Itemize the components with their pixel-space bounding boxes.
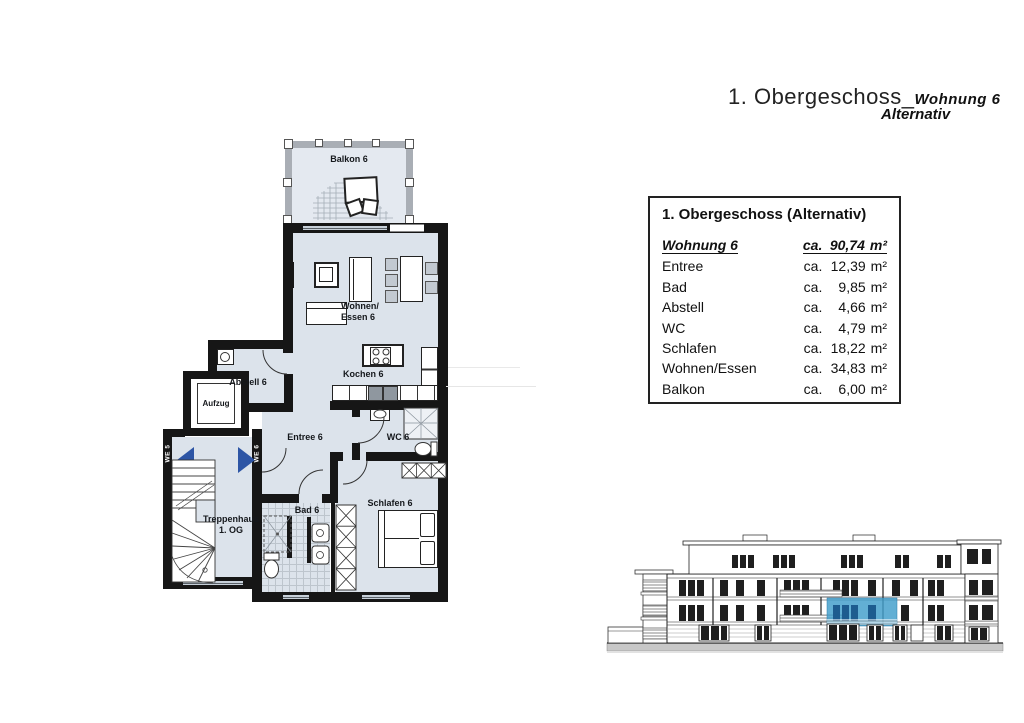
- wc-toilet: [415, 442, 437, 456]
- wardrobe-column: [336, 505, 356, 590]
- right-wing: [965, 574, 998, 643]
- stove-burners: [373, 349, 389, 364]
- washing-machine-drum: [221, 353, 230, 362]
- penthouse: [683, 535, 967, 574]
- label-living-line2: Essen 6: [341, 312, 401, 323]
- label-bedroom: Schlafen 6: [355, 498, 425, 509]
- balcony-table-set: [344, 177, 378, 216]
- scanned-floorplan-page: 1. Obergeschoss_Wohnung 6 Alternativ 1. …: [0, 0, 1024, 723]
- wc-sink-bowl: [374, 410, 386, 418]
- label-balcony: Balkon 6: [309, 154, 389, 165]
- label-elevator: Aufzug: [197, 398, 235, 409]
- ground-bar: [607, 643, 1003, 651]
- scan-artifact-line: [446, 386, 536, 387]
- bedroom-door-arc: [343, 460, 367, 484]
- building-elevation: [605, 524, 1005, 660]
- scan-artifact-line: [448, 367, 520, 368]
- label-kitchen: Kochen 6: [343, 369, 403, 380]
- label-stairwell-line1: Treppenhaus: [196, 514, 266, 525]
- label-storage: Abstell 6: [218, 377, 278, 388]
- bath-shower: [264, 516, 291, 552]
- label-living-line1: Wohnen/: [341, 301, 401, 312]
- right-tower: [957, 540, 1001, 574]
- apartment-highlight: [827, 598, 897, 626]
- label-stairwell-line2: 1. OG: [196, 525, 266, 536]
- wardrobe-row: [402, 463, 446, 478]
- bath-toilet: [264, 553, 279, 578]
- left-fence: [608, 627, 645, 643]
- entree-door-arc: [262, 448, 286, 472]
- bath-door-arc: [299, 470, 323, 494]
- label-wc: WC 6: [378, 432, 418, 443]
- balcony-rail-upper: [780, 590, 842, 597]
- label-bath: Bad 6: [282, 505, 332, 516]
- label-entree: Entree 6: [275, 432, 335, 443]
- storage-door-arc: [263, 350, 287, 374]
- label-we5: WE 5: [165, 441, 172, 467]
- bath-sinks: [312, 524, 329, 564]
- label-we6: WE 6: [254, 441, 261, 467]
